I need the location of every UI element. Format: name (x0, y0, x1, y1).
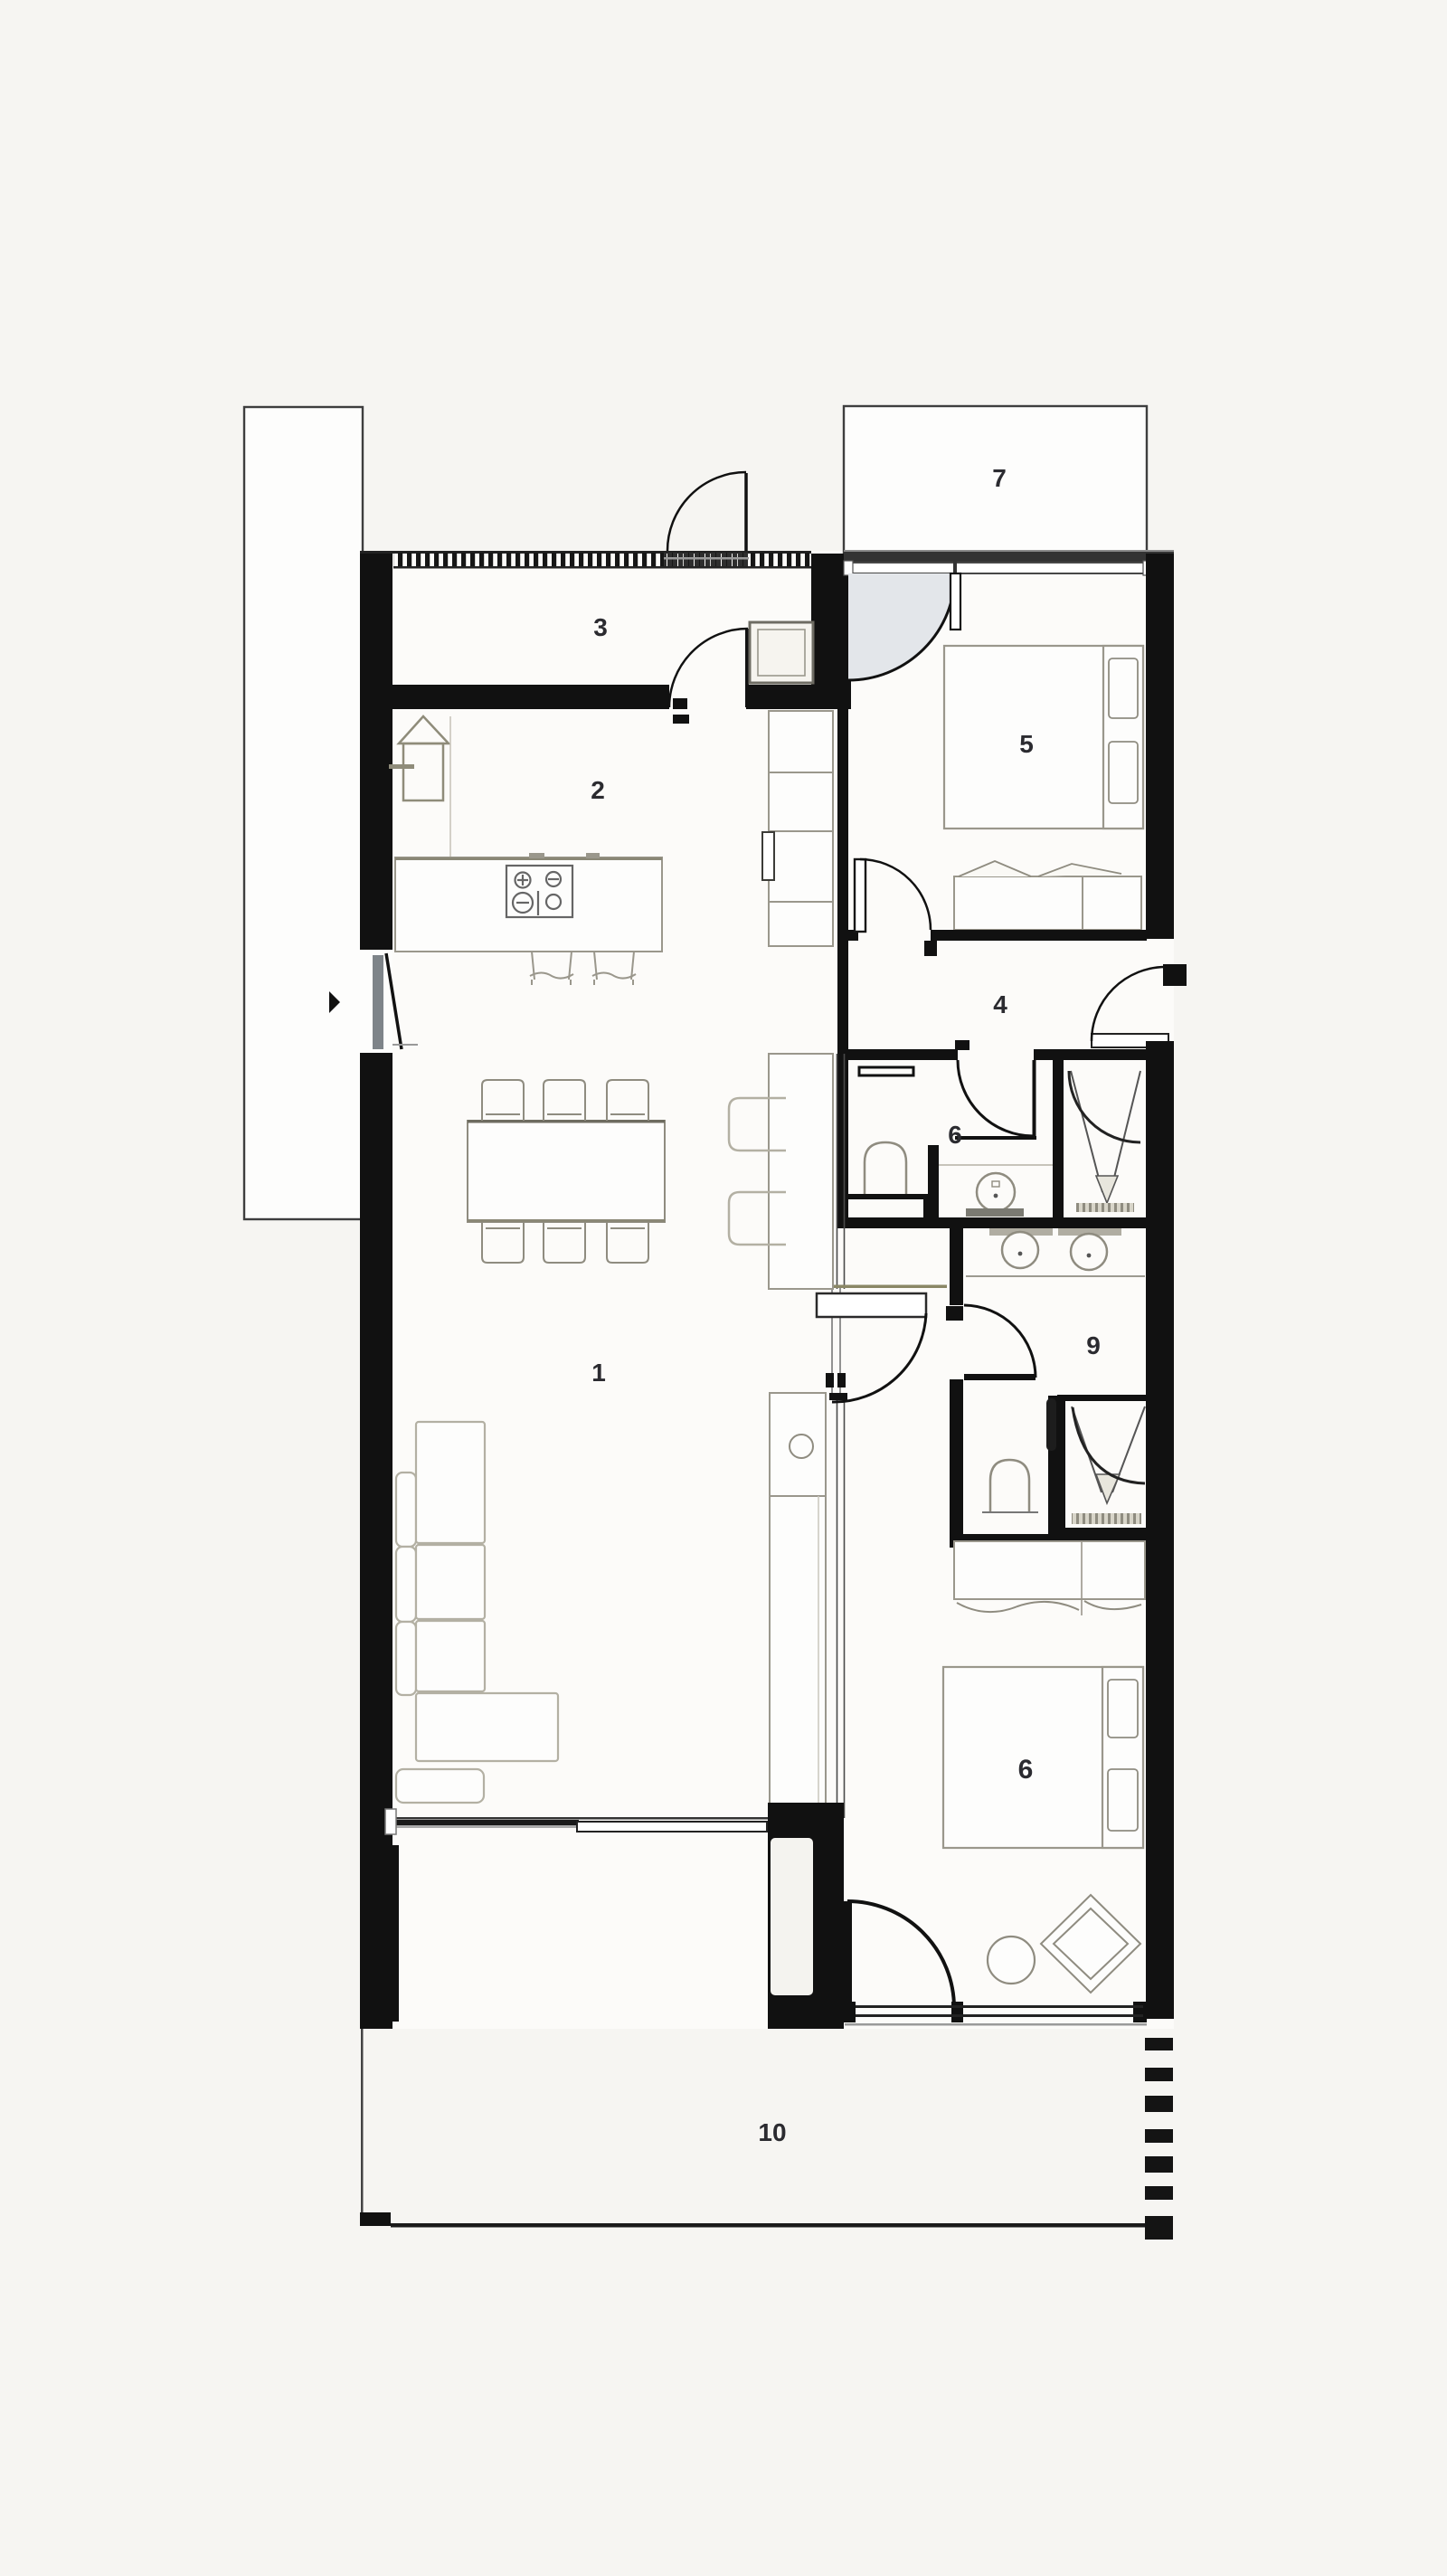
svg-text:3: 3 (593, 613, 608, 641)
svg-text:2: 2 (591, 776, 605, 804)
svg-text:9: 9 (1086, 1331, 1101, 1359)
svg-text:1: 1 (591, 1359, 606, 1387)
svg-text:10: 10 (758, 2118, 786, 2146)
svg-text:7: 7 (992, 464, 1007, 492)
svg-text:6: 6 (1018, 1755, 1034, 1785)
svg-text:5: 5 (1019, 730, 1034, 758)
svg-text:4: 4 (993, 990, 1007, 1018)
svg-text:6: 6 (948, 1121, 962, 1149)
